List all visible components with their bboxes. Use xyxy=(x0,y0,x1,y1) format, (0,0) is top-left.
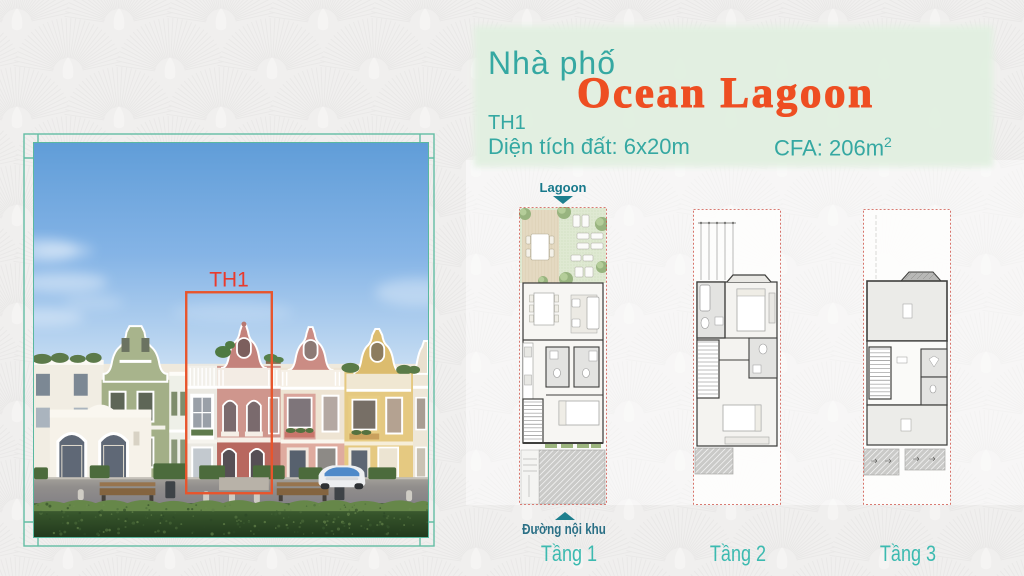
svg-text:TH1: TH1 xyxy=(209,268,248,291)
